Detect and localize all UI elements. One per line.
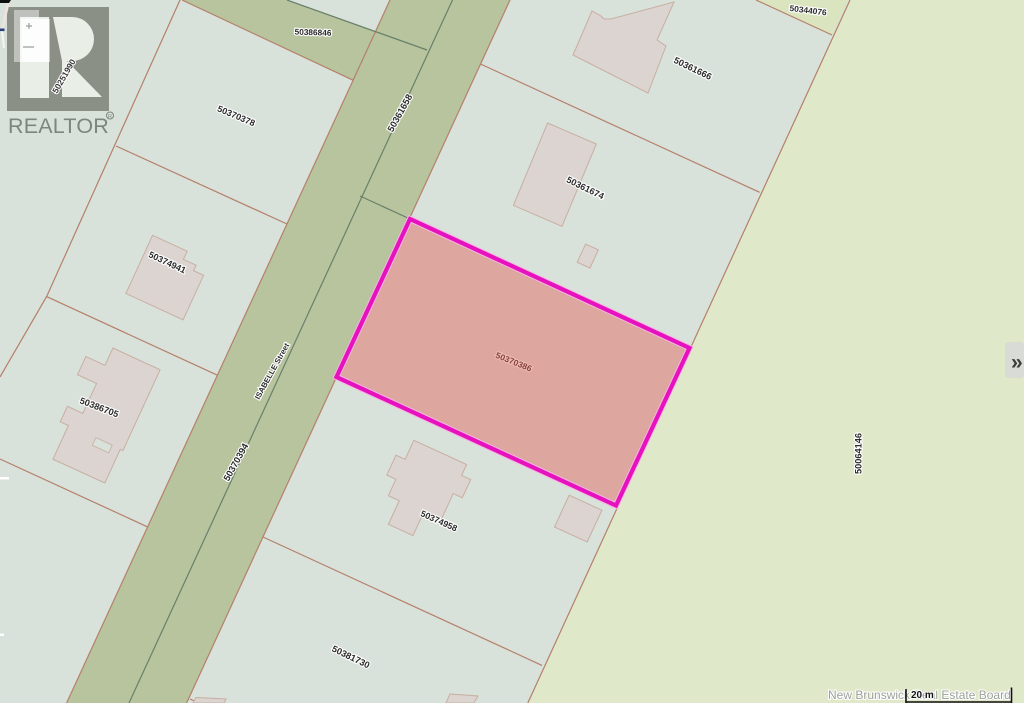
svg-text:REALTOR: REALTOR (8, 114, 109, 138)
svg-text:50064146: 50064146 (853, 433, 863, 474)
svg-text:50386846: 50386846 (294, 27, 332, 38)
svg-text:20 m: 20 m (911, 690, 934, 701)
svg-text:»: » (1011, 351, 1023, 374)
svg-text:R: R (108, 114, 112, 120)
